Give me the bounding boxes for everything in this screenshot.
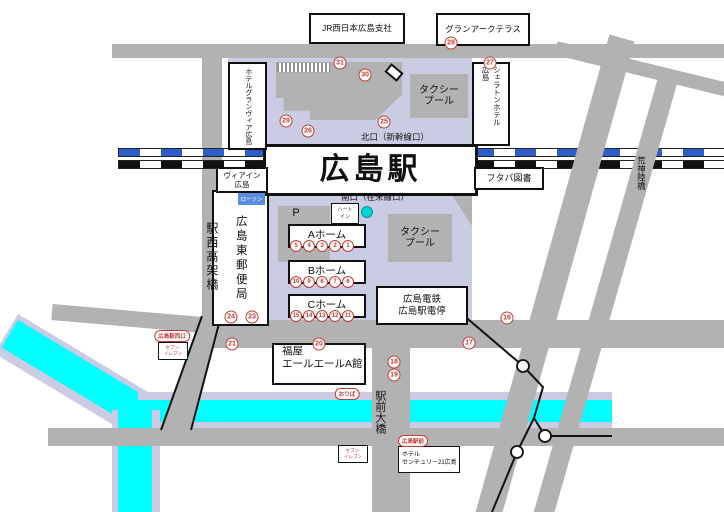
bus-stop-23-num: 23	[248, 314, 256, 321]
bus-stop-16: 16	[501, 312, 514, 325]
bus-stop-17-num: 17	[465, 340, 473, 347]
south-taxi-pool-line1: タクシー	[400, 227, 440, 239]
bus-stop-27: 27	[484, 57, 497, 70]
bus-stop-3-num: 3	[320, 243, 323, 249]
parking-label: P	[288, 206, 304, 220]
heart-in-line2: イン	[340, 214, 350, 221]
platform-c-label: Cホーム	[308, 299, 347, 312]
bus-stop-4: 4	[303, 240, 315, 252]
bus-stop-2: 2	[329, 240, 341, 252]
bus-stop-11-num: 11	[345, 313, 351, 319]
bus-stop-29: 29	[280, 115, 293, 128]
bus-stop-8-num: 8	[320, 279, 323, 285]
ekimae-badge: 広島駅前	[398, 435, 428, 447]
station-name: 広島駅	[320, 151, 422, 189]
south-taxi-pool-line2: プール	[405, 238, 435, 250]
bus-stop-7: 7	[329, 276, 341, 288]
oriba-badge: おりば	[335, 388, 360, 400]
west-exit-badge-text: 広島駅西口	[158, 334, 186, 340]
bus-stop-16-num: 16	[503, 315, 511, 322]
fukuya-line1: 福屋	[282, 345, 303, 358]
seven-south-line2: イレブン	[344, 454, 362, 460]
hiroden-tram-stop-box: 広島電鉄 広島駅電停	[376, 286, 468, 325]
bus-stop-30: 30	[359, 69, 372, 82]
bus-stop-15: 15	[290, 310, 302, 322]
bus-stop-31-num: 31	[336, 60, 344, 67]
bus-stop-24: 24	[225, 311, 238, 324]
south-taxi-pool-label: タクシー プール	[388, 222, 452, 254]
bus-stop-18: 18	[388, 356, 401, 369]
north-exit-label: 北口（新幹線口）	[340, 132, 450, 144]
post-office-label: 広島東郵便局	[233, 215, 247, 302]
bus-stop-19: 19	[388, 369, 401, 382]
fukuya-line2: エールエールA館	[282, 358, 363, 371]
bus-stop-15-num: 15	[293, 313, 300, 319]
futaba-tosho-label: フタバ図書	[486, 173, 531, 184]
west-exit-badge: 広島駅西口	[154, 330, 190, 342]
station-box: 広島駅	[263, 144, 478, 196]
bus-stop-1-num: 1	[346, 243, 349, 249]
bus-stop-10-num: 10	[293, 279, 300, 285]
grand-arc-terrace-label: グランアークテラス	[445, 24, 521, 35]
bus-stop-12-num: 12	[332, 313, 339, 319]
hotel-century-line2: センチュリー21広島	[402, 460, 457, 468]
bus-stop-12: 12	[329, 310, 341, 322]
sheraton-label-right: シェラトンホテル	[492, 66, 501, 126]
north-exit-text: 北口（新幹線口）	[361, 133, 429, 143]
bus-stop-2-num: 2	[333, 243, 336, 249]
bus-stop-28: 28	[445, 37, 458, 50]
ekimae-bridge-text: 駅前大橋	[373, 390, 386, 434]
via-inn-box: ヴィアイン 広島	[216, 167, 268, 193]
bus-stop-25: 25	[378, 116, 391, 129]
bus-stop-10: 10	[290, 276, 302, 288]
west-viaduct-text: 駅西高架橋	[204, 222, 218, 292]
ekimae-badge-text: 広島駅前	[402, 439, 424, 445]
bus-stop-21-num: 21	[228, 341, 236, 348]
bus-stop-17: 17	[463, 337, 476, 350]
bus-stop-5: 5	[290, 240, 302, 252]
tram-stop-3	[511, 446, 523, 458]
bus-stop-26-num: 26	[304, 128, 312, 135]
kojin-bridge-label: 荒神陸橋	[633, 149, 648, 197]
hiroshima-station-area-map: 広島駅 JR西日本広島支社 グランアークテラス ホテルグランヴィア広島 広島 シ…	[0, 0, 724, 512]
bus-stop-20: 20	[313, 338, 326, 351]
bus-stop-6-num: 6	[346, 279, 349, 285]
west-viaduct-label: 駅西高架橋	[200, 216, 222, 298]
ekimae-bridge-label: 駅前大橋	[371, 384, 388, 440]
bus-stop-9: 9	[303, 276, 315, 288]
hiroden-line2: 広島駅電停	[398, 306, 446, 318]
bus-stop-6: 6	[342, 276, 354, 288]
northeast-arm-road	[556, 48, 724, 90]
hotel-granvia-box: ホテルグランヴィア広島	[228, 62, 267, 150]
north-taxi-pool-line2: プール	[424, 96, 454, 108]
bus-stop-9-num: 9	[307, 279, 310, 285]
futaba-tosho-box: フタバ図書	[474, 167, 544, 190]
bus-stop-14-num: 14	[306, 313, 313, 319]
parking-text: P	[292, 207, 299, 220]
bus-stop-13: 13	[316, 310, 328, 322]
via-inn-label-1: ヴィアイン	[223, 171, 260, 180]
via-inn-label-2: 広島	[235, 180, 250, 189]
jr-west-office-box: JR西日本広島支社	[309, 13, 405, 44]
hiroden-line1: 広島電鉄	[403, 294, 441, 306]
north-taxi-pool-label: タクシー プール	[410, 80, 468, 112]
jr-west-office-label: JR西日本広島支社	[322, 23, 392, 34]
bus-stop-8: 8	[316, 276, 328, 288]
bus-stop-30-num: 30	[361, 72, 369, 79]
bus-stop-5-num: 5	[294, 243, 297, 249]
heart-in-box: ハート イン	[331, 203, 359, 224]
bus-stop-19-num: 19	[390, 372, 398, 379]
bus-stop-26: 26	[302, 125, 315, 138]
seven-west-line2: イレブン	[164, 351, 182, 357]
seven-eleven-west-box: セブン- イレブン	[158, 342, 188, 360]
bus-stop-18-num: 18	[390, 359, 398, 366]
seven-eleven-south-box: セブン- イレブン	[338, 445, 368, 463]
hotel-century-line1: ホテル	[402, 452, 420, 460]
bus-stop-7-num: 7	[333, 279, 336, 285]
bus-stop-3: 3	[316, 240, 328, 252]
lawson-tag: ローソン	[238, 193, 265, 205]
bus-stop-23: 23	[246, 311, 259, 324]
bus-stop-28-num: 28	[447, 40, 455, 47]
bus-stop-14: 14	[303, 310, 315, 322]
north-taxi-pool-line1: タクシー	[419, 85, 459, 97]
hotel-century-box: ホテル センチュリー21広島	[398, 446, 460, 473]
bus-stop-13-num: 13	[319, 313, 326, 319]
bus-stop-4-num: 4	[307, 243, 310, 249]
lawson-label: ローソン	[240, 195, 262, 203]
teal-dot-marker	[361, 206, 373, 218]
kojin-bridge-text: 荒神陸橋	[636, 156, 646, 190]
bus-stop-25-num: 25	[380, 119, 388, 126]
bus-stop-29-num: 29	[282, 118, 290, 125]
bus-stop-27-num: 27	[486, 60, 494, 67]
tram-stop-1	[517, 360, 529, 372]
sheraton-hotel-box: 広島 シェラトンホテル	[472, 62, 510, 146]
platform-b-label: Bホーム	[308, 265, 346, 278]
bus-stop-11: 11	[342, 310, 354, 322]
oriba-badge-text: おりば	[339, 392, 356, 398]
tram-stop-2	[539, 430, 551, 442]
bus-stop-31: 31	[334, 57, 347, 70]
hotel-granvia-label: ホテルグランヴィア広島	[243, 68, 252, 145]
northwest-diagonal-road	[52, 312, 214, 326]
bus-stop-24-num: 24	[227, 314, 235, 321]
bus-stop-20-num: 20	[315, 341, 323, 348]
bus-stop-1: 1	[342, 240, 354, 252]
platform-a-label: Aホーム	[308, 229, 346, 242]
bus-stop-21: 21	[226, 338, 239, 351]
